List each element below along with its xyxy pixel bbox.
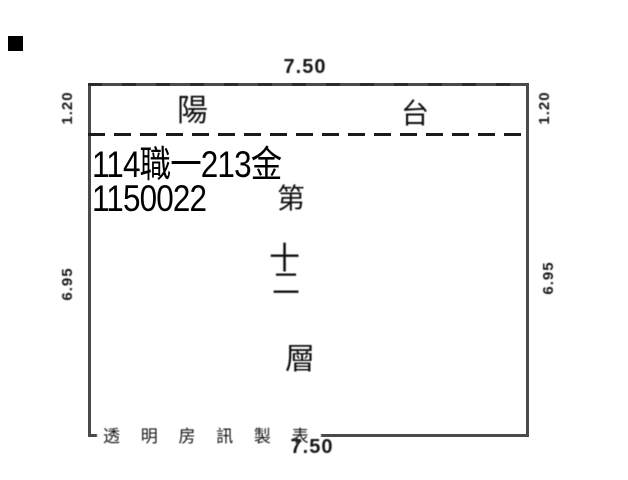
- top-edge-dash-overlay: [88, 83, 529, 86]
- dimension-left-balcony-depth: 1.20: [60, 68, 76, 148]
- registry-stamp-line1: 114職一213金: [92, 148, 281, 182]
- dimension-bottom-width: 7.50: [272, 437, 352, 457]
- registry-stamp-line2: 1150022: [92, 182, 281, 216]
- room-outline: [88, 83, 529, 437]
- balcony-label-right-char: 台: [401, 100, 429, 128]
- dimension-top-width: 7.50: [265, 57, 345, 77]
- dimension-right-room-depth: 6.95: [541, 238, 557, 318]
- scan-corner-mark: [8, 36, 23, 51]
- floor-label-char-er: 二: [272, 270, 300, 298]
- dimension-right-balcony-depth: 1.20: [537, 68, 553, 148]
- balcony-label-left-char: 陽: [177, 95, 208, 126]
- floor-label-char-ceng: 層: [285, 345, 315, 375]
- floorplan-scan: 7.50 陽 台 1.20 1.20 6.95 6.95 114職一213金 1…: [0, 0, 628, 480]
- registry-stamp: 114職一213金 1150022: [92, 148, 281, 216]
- balcony-divider-dashed-line: [88, 133, 529, 136]
- dimension-left-room-depth: 6.95: [60, 244, 76, 324]
